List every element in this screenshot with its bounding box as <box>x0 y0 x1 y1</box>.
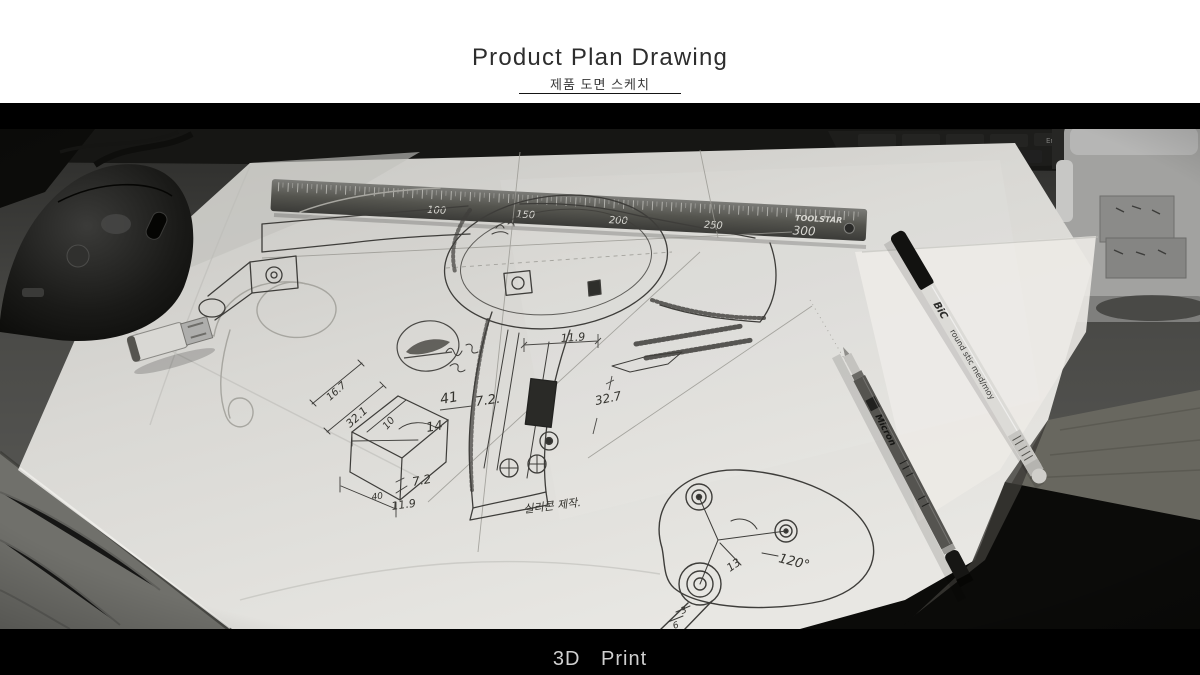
desk-photo-svg: End <box>0 129 1200 629</box>
subtitle-underline <box>519 93 681 94</box>
page-subtitle: 제품 도면 스케치 <box>0 74 1200 93</box>
footer-caption: 3D Print <box>0 648 1200 671</box>
header-band: Product Plan Drawing 제품 도면 스케치 <box>0 0 1200 103</box>
portfolio-slide: Product Plan Drawing 제품 도면 스케치 <box>0 0 1200 675</box>
page-title: Product Plan Drawing <box>0 44 1200 72</box>
top-divider-band <box>0 103 1200 129</box>
photo-vignette <box>0 129 1200 629</box>
desk-photo: End <box>0 129 1200 629</box>
footer-band: 3D Print <box>0 629 1200 675</box>
